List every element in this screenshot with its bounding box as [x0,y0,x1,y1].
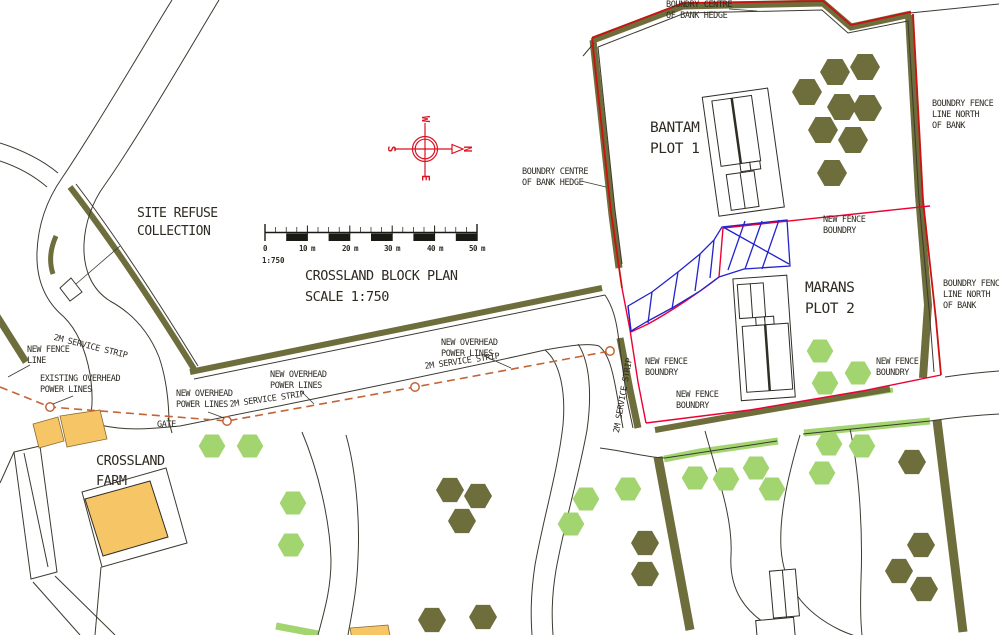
compass-east-label: E [419,175,431,181]
boundry-centre-label-mid: BOUNDRY CENTRE OF BANK HEDGE [522,167,588,189]
scale-ratio: 1:750 [262,256,285,265]
compass-north-label: N [461,146,473,152]
power-pole [411,383,419,391]
new-fence-boundry-label-1: NEW FENCE BOUNDRY [823,215,865,237]
boundry-fence-north-label-upper: BOUNDRY FENCE LINE NORTH OF BANK [932,99,993,133]
block-plan-drawing: W N E S CROSSLAND BLOCK PLAN SCALE 1:750… [0,0,999,635]
scale-tick-40: 40 m [422,244,448,253]
new-fence-boundry-label-3: NEW FENCE BOUNDRY [676,390,718,412]
existing-overhead-label: EXISTING OVERHEAD POWER LINES [40,374,120,396]
new-fence-boundary-line [622,206,941,423]
bantam-plot-label: BANTAM PLOT 1 [650,118,699,160]
drawing-scale: SCALE 1:750 [305,287,389,307]
power-pole [606,347,614,355]
gate-label: GATE [157,420,176,431]
scale-tick-20: 20 m [337,244,363,253]
scale-tick-10: 10 m [294,244,320,253]
compass-west-label: W [419,116,431,123]
scale-tick-30: 30 m [379,244,405,253]
drawing-title: CROSSLAND BLOCK PLAN [305,266,458,286]
boundry-centre-label-top: BOUNDRY CENTRE OF BANK HEDGE [666,0,732,22]
bantam-plot-buildings [702,88,784,216]
power-pole [46,403,54,411]
compass-south-label: S [385,146,397,152]
new-fence-line-label: NEW FENCE LINE [27,345,69,367]
scale-bar [265,224,477,241]
new-overhead-label-1: NEW OVERHEAD POWER LINES [176,389,233,411]
grass-verge-strips [276,390,930,634]
crossland-farm-label: CROSSLAND FARM [96,451,165,492]
new-fence-boundry-label-2: NEW FENCE BOUNDRY [645,357,687,379]
scale-tick-50: 50 m [464,244,490,253]
marans-plot-label: MARANS PLOT 2 [805,278,854,320]
compass-rose: W N E S [385,116,473,181]
site-refuse-label: SITE REFUSE COLLECTION [137,205,218,241]
scale-tick-0: 0 [252,244,278,253]
boundry-fence-north-label-lower: BOUNDRY FENCE LINE NORTH OF BANK [943,279,999,313]
power-pole [223,417,231,425]
new-overhead-label-2: NEW OVERHEAD POWER LINES [270,370,327,392]
bottom-outbuildings [752,569,802,635]
new-fence-boundry-label-4: NEW FENCE BOUNDRY [876,357,918,379]
marans-plot-buildings [733,275,795,400]
